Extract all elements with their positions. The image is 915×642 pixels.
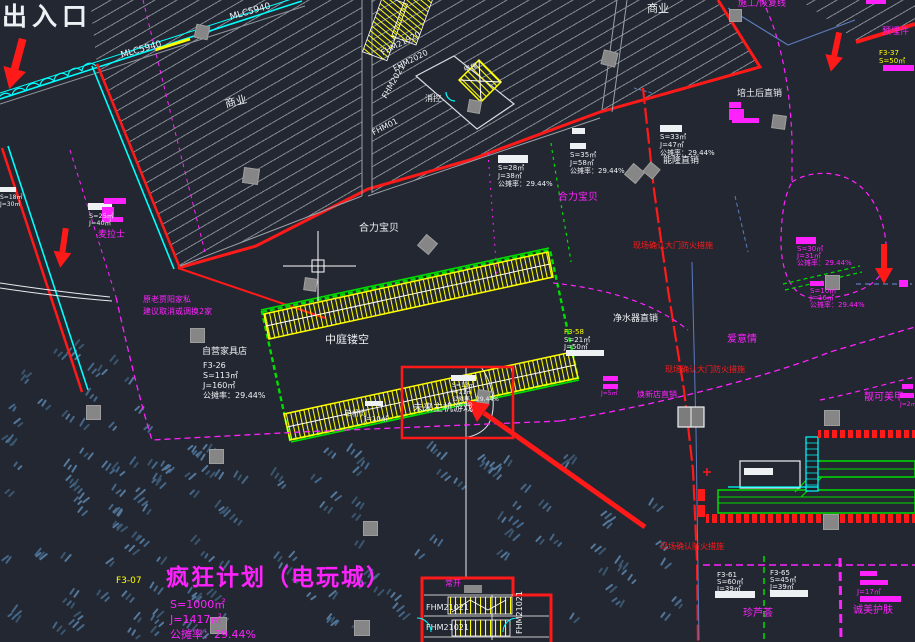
cad-text-blk11-j: J=2㎡ (900, 402, 915, 408)
mall-gate (678, 407, 704, 427)
cad-text-blk3-rate: 公摊率：29.44% (660, 150, 715, 157)
area-swatch-bar (899, 280, 908, 287)
cad-text-arcade-code: F3-07 (116, 577, 142, 586)
area-swatch-bar (451, 375, 476, 381)
red-tick-band-1 (818, 430, 915, 438)
cad-text-heli-baby-magenta: 合力宝贝 (558, 193, 598, 204)
cad-text-blk4-rate: 公摊率：29.44% (452, 397, 499, 403)
area-swatch-bar (603, 384, 618, 389)
structural-column (194, 24, 211, 41)
cad-text-stair-code-b1: FHM21021 (426, 604, 469, 612)
cad-text-fire-note-1: 现场确认大门防火措施 (633, 242, 713, 250)
cad-text-blk13-j: J=40㎡ (89, 220, 111, 227)
area-swatch-bar (660, 125, 682, 132)
area-swatch-bar (572, 128, 585, 134)
area-swatch-bar (729, 102, 741, 108)
structural-column (729, 9, 742, 22)
cad-text-stair-code-b2: FHM21021 (426, 624, 469, 632)
top-stair-block (363, 0, 514, 129)
cad-text-arcade-j: J=1417㎡ (170, 614, 221, 626)
cad-text-shop-skincare: 诚美护肤 (853, 606, 893, 617)
area-swatch-bar (603, 376, 618, 381)
red-tick-band-2 (706, 514, 915, 523)
cad-text-blk5-rate: 公摊率：29.44% (797, 260, 852, 267)
structural-column (354, 620, 370, 636)
structural-column (467, 99, 482, 114)
cad-text-blk8-j: J=39㎡ (770, 584, 794, 591)
structural-column (824, 410, 840, 426)
cad-text-shop-peitu: 培土后直销 (737, 90, 782, 99)
path-lines (0, 283, 493, 583)
area-swatch-bar (0, 187, 16, 192)
structural-column (303, 277, 318, 292)
cad-text-fire-note-3: 现场确认防火措施 (660, 543, 724, 551)
structural-column (190, 328, 205, 343)
cad-text-shop-huanxin: 焕新店直销 (637, 391, 677, 399)
travelator-group (698, 430, 915, 523)
cad-text-stair-code-b3: FHM21021 (516, 591, 524, 634)
cad-text-future-console-games: 未来主机游戏 (413, 404, 473, 415)
cad-text-pole-light-j: J=10㎡ (364, 416, 388, 423)
area-swatch-bar (796, 237, 816, 244)
cad-text-arcade-title: 疯狂计划（电玩城） (166, 566, 391, 590)
area-swatch-bar (860, 571, 877, 576)
area-swatch-bar (104, 198, 126, 204)
cad-text-blk6-rate: 公摊率：29.44% (810, 302, 865, 309)
area-swatch-bar (810, 281, 824, 286)
structural-column (86, 405, 101, 420)
area-swatch-bar (860, 596, 901, 602)
cad-text-shop-aloe: 珍芦荟 (743, 609, 773, 620)
area-swatch-bar (866, 0, 886, 4)
cad-text-corner-note: 施工/恢复线 (738, 0, 786, 9)
cad-text-atrium: 中庭镂空 (325, 334, 369, 346)
cad-text-commercial-top: 商业 (647, 3, 669, 15)
cad-text-note-old-tenant: 原老贾阳家私 (143, 296, 191, 304)
cad-text-shop-aiyiqing: 爱意情 (727, 335, 757, 346)
cad-text-blk2-rate: 公摊率：29.44% (570, 168, 625, 175)
cad-text-furniture-j: J=160㎡ (203, 382, 235, 390)
big-red-arrow (466, 400, 645, 527)
stair-ladder (806, 437, 818, 491)
site-wall-left (2, 64, 180, 392)
area-swatch-bar (498, 155, 528, 163)
cad-text-shop-nails: 靓可美甲 (864, 393, 904, 404)
cad-text-unit-f337-s: S=50㎡ (879, 58, 905, 65)
cad-text-blk10-j: J=17㎡ (857, 589, 881, 596)
structural-column (363, 521, 378, 536)
area-swatch-bar (902, 384, 913, 389)
green-lines (551, 143, 862, 642)
cad-text-blk14-j: J=30㎡ (0, 202, 20, 208)
area-swatch-bar (365, 401, 383, 406)
cad-text-heli-baby-white: 合力宝贝 (359, 224, 399, 235)
cad-text-blk7-j: J=39㎡ (717, 586, 741, 593)
cad-text-furniture-title: 自营家具店 (202, 348, 247, 357)
cad-text-shop-mailashi: 麦拉士 (98, 231, 125, 240)
area-swatch-bar (729, 109, 744, 120)
cad-text-shop-nenglong: 能隆直销 (663, 157, 699, 166)
cad-text-blk12-j: J=5㎡ (601, 391, 618, 397)
area-swatch-bar (570, 143, 586, 149)
cad-text-arcade-s: S=1000㎡ (170, 599, 225, 611)
structural-column (242, 167, 260, 185)
area-swatch-bar (883, 65, 914, 71)
cad-text-furniture-s: S=113㎡ (203, 372, 238, 380)
area-swatch-bar (860, 580, 888, 585)
cad-crosshair-cursor (283, 231, 356, 301)
structural-column (209, 449, 224, 464)
cad-text-furniture-code: F3-26 (203, 362, 226, 370)
area-swatch-bar (744, 468, 773, 475)
cad-text-note-suggest: 建议取消或调换2家 (143, 308, 212, 316)
cad-canvas[interactable]: 出入口MLC5940MLC5940商业商业FHM21920FHM2020FHM2… (0, 0, 915, 642)
cad-text-furniture-rate: 公摊率：29.44% (203, 392, 266, 400)
structural-column (771, 114, 787, 130)
cad-text-shop-jingshui: 净水器直销 (613, 315, 658, 324)
cad-text-normally-open: 常开 (445, 580, 461, 588)
cad-text-blk1-rate: 公摊率：29.44% (498, 181, 553, 188)
cad-text-fire-room: 消控 (425, 95, 441, 103)
cad-text-blk9-j: J=50㎡ (564, 344, 588, 351)
cad-text-entrance: 出入口 (2, 4, 92, 30)
cad-text-fire-note-2: 现场确认大门防火措施 (665, 366, 745, 374)
escalator-band-top (264, 252, 553, 339)
cad-text-embed-note: 预埋件 (882, 28, 909, 37)
structural-column (823, 514, 839, 530)
cad-text-arcade-rate: 公摊率：29.44% (170, 629, 256, 641)
